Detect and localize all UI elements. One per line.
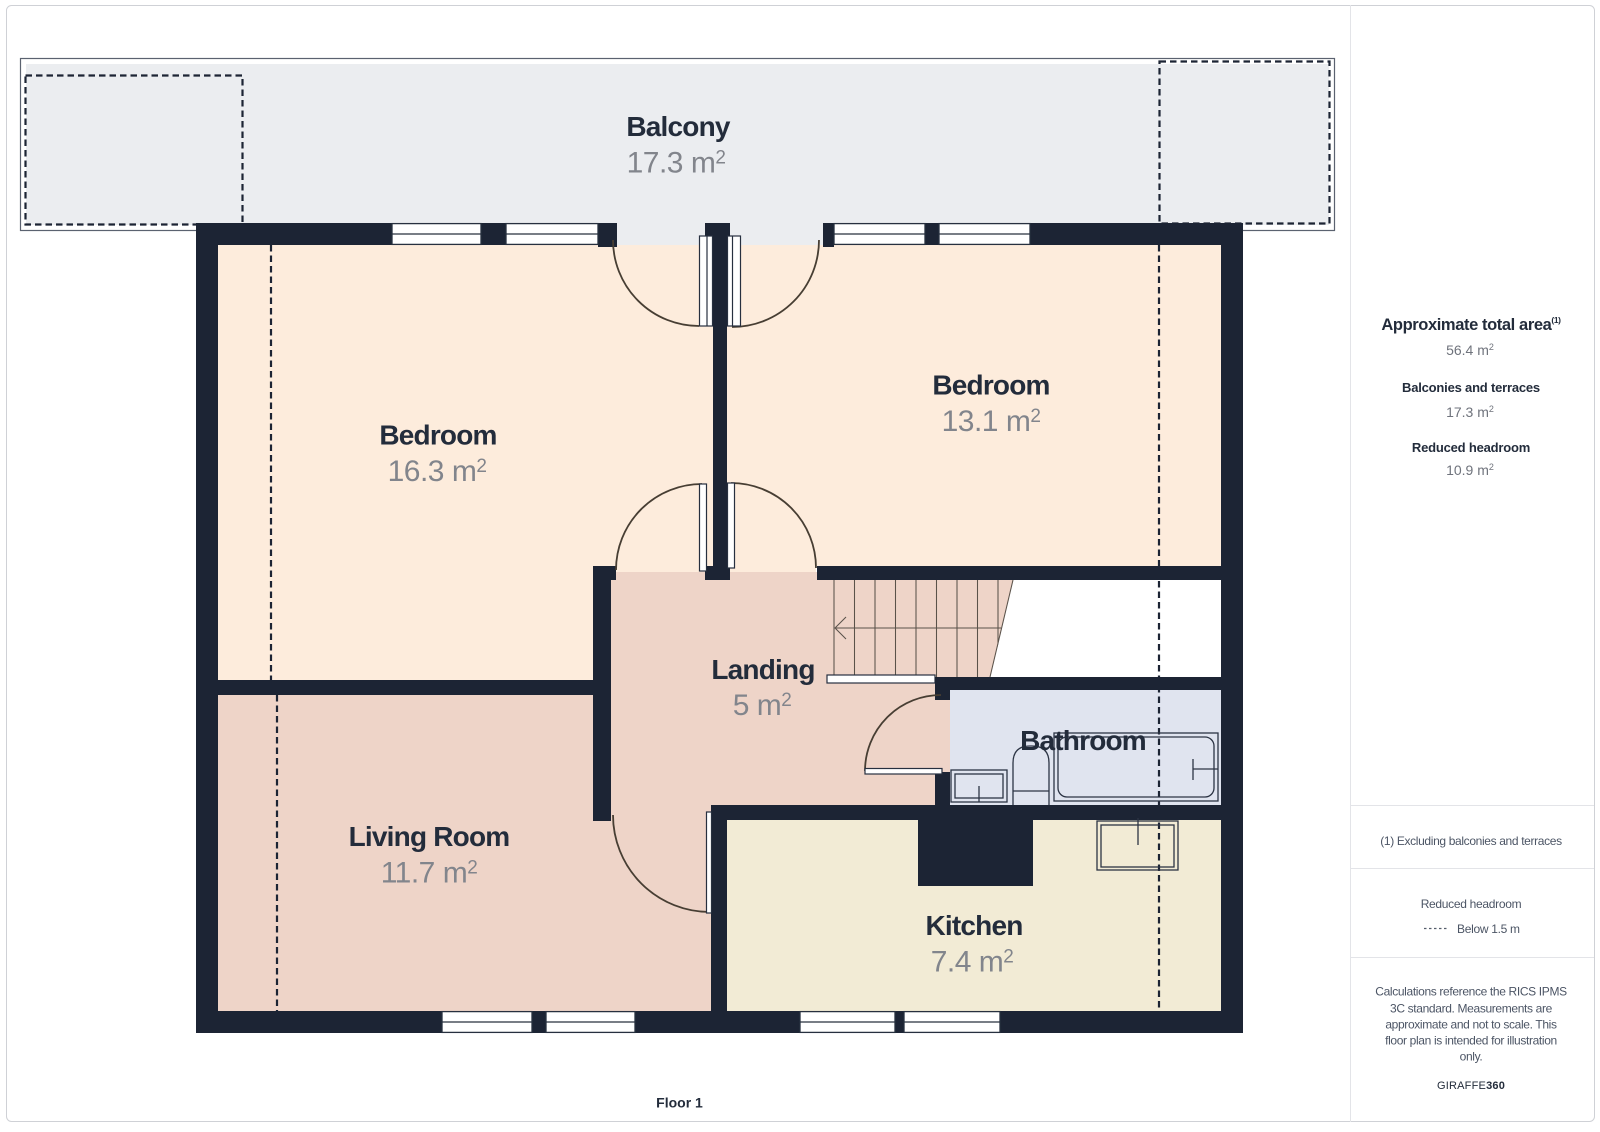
svg-text:approximate and not to scale.: approximate and not to scale. This bbox=[1385, 1018, 1557, 1032]
svg-text:Bedroom: Bedroom bbox=[379, 420, 496, 451]
svg-text:only.: only. bbox=[1460, 1050, 1483, 1064]
svg-text:Below 1.5 m: Below 1.5 m bbox=[1457, 922, 1520, 936]
svg-text:Living Room: Living Room bbox=[349, 821, 510, 852]
svg-text:Balcony: Balcony bbox=[626, 111, 731, 142]
svg-text:GIRAFFE360: GIRAFFE360 bbox=[1437, 1080, 1505, 1092]
svg-text:17.3 m2: 17.3 m2 bbox=[1446, 404, 1494, 420]
svg-text:56.4 m2: 56.4 m2 bbox=[1446, 342, 1494, 358]
svg-text:Bedroom: Bedroom bbox=[932, 370, 1049, 401]
svg-text:16.3 m2: 16.3 m2 bbox=[388, 455, 487, 488]
svg-text:10.9 m2: 10.9 m2 bbox=[1446, 462, 1494, 478]
svg-text:Balconies and terraces: Balconies and terraces bbox=[1402, 380, 1540, 395]
svg-text:Floor 1: Floor 1 bbox=[656, 1095, 703, 1111]
svg-text:Reduced headroom: Reduced headroom bbox=[1421, 897, 1522, 911]
svg-text:17.3 m2: 17.3 m2 bbox=[627, 147, 726, 180]
svg-text:Bathroom: Bathroom bbox=[1020, 725, 1146, 756]
svg-text:3C standard. Measurements are: 3C standard. Measurements are bbox=[1390, 1002, 1553, 1016]
svg-text:Kitchen: Kitchen bbox=[925, 910, 1022, 941]
svg-text:7.4 m2: 7.4 m2 bbox=[931, 946, 1014, 979]
svg-text:Reduced headroom: Reduced headroom bbox=[1412, 440, 1530, 455]
svg-text:13.1 m2: 13.1 m2 bbox=[942, 405, 1041, 438]
svg-text:(1) Excluding balconies and te: (1) Excluding balconies and terraces bbox=[1380, 834, 1562, 848]
svg-text:floor plan is intended for ill: floor plan is intended for illustration bbox=[1385, 1034, 1557, 1048]
svg-text:11.7 m2: 11.7 m2 bbox=[381, 857, 478, 890]
svg-text:Approximate total area(1): Approximate total area(1) bbox=[1381, 315, 1561, 334]
svg-text:Landing: Landing bbox=[711, 654, 814, 685]
svg-text:Calculations reference the RIC: Calculations reference the RICS IPMS bbox=[1375, 985, 1567, 999]
